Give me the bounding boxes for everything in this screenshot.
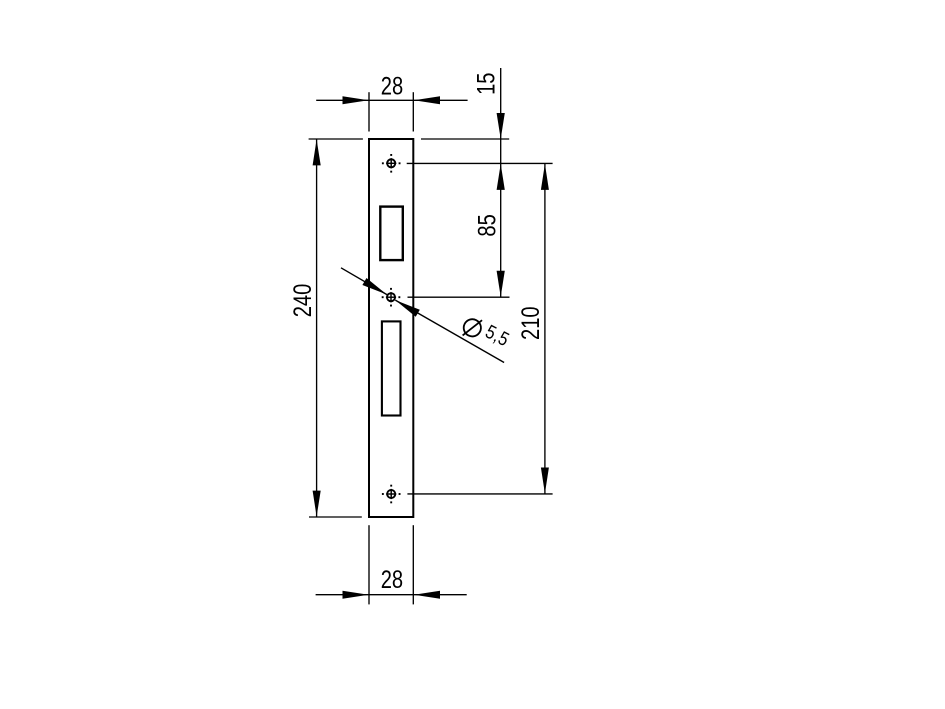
svg-text:85: 85 bbox=[472, 214, 501, 236]
svg-text:28: 28 bbox=[381, 565, 403, 594]
svg-text:210: 210 bbox=[516, 306, 545, 340]
svg-text:28: 28 bbox=[381, 71, 403, 100]
svg-text:240: 240 bbox=[288, 284, 317, 318]
svg-text:15: 15 bbox=[471, 72, 500, 94]
